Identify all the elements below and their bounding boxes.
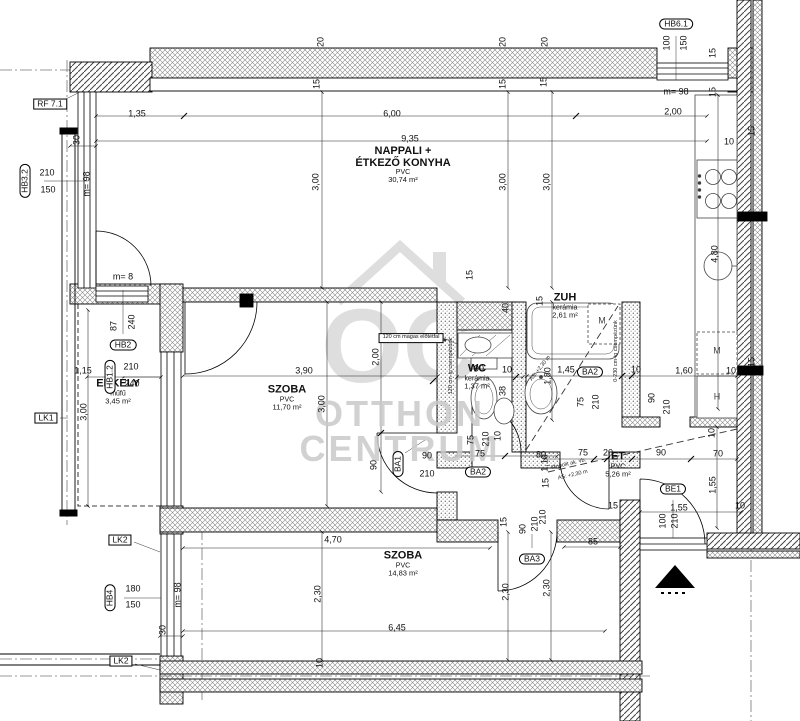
dimension-label: 85 [588,537,598,546]
dimension-label: 90 [518,524,527,534]
dimension-label: 20 [498,37,507,47]
dimension-label: 2,00 [664,107,682,116]
appliance-letter: H [714,392,721,401]
dimension-label: 15 [608,501,618,510]
dimension-label: 90 [656,448,666,457]
opening-tag: HB3.2 [20,164,31,198]
dimension-label: 10 [493,431,502,441]
dimension-label: m= 98 [663,87,688,96]
dimension-label: 210 [39,168,54,177]
dimension-label: 90 [474,364,484,373]
stove-icon [697,160,737,218]
room-label: SZOBAPVC14,83 m² [384,551,423,578]
dimension-label: 1,60 [675,366,693,375]
dimension-label: 210 [419,469,434,478]
dimension-label: 180 [125,584,140,593]
dimension-label: 90 [422,451,432,460]
room-area: 11,70 m² [268,404,307,412]
dimension-label: 15 [747,126,756,136]
dimension-label: 4,80 [710,245,719,263]
dimension-label: 15 [498,79,507,89]
dimension-label: 3,00 [79,403,88,421]
entrance-arrow-icon [655,565,695,593]
dimension-label: 15 [539,77,548,87]
dimension-label: 3,00 [317,395,326,413]
dimension-label: m= 98 [173,582,182,607]
corner-basin-icon [494,398,514,424]
dimension-label: 90 [647,393,656,403]
dimension-label: 1,15 [74,366,92,375]
dimension-label: 15 [708,48,717,58]
dimension-label: m= 98 [82,171,91,196]
opening-tag: BA3 [519,554,545,565]
dimension-label: 1,55 [670,503,688,512]
room-label: SZOBAPVC11,70 m² [268,385,307,412]
dimension-label: 2,00 [371,348,380,366]
dimension-label: 210 [662,399,671,414]
door-be1 [640,538,707,550]
dimension-label: 3,00 [311,173,320,191]
dimension-label: 15 [708,87,717,97]
dimension-label: 20 [540,37,549,47]
dimension-label: 87 [109,321,118,331]
reference-box: LK1 [34,413,57,424]
dimension-label: 10 [315,658,324,668]
dimension-label: 6,00 [383,109,401,118]
room-area: 14,83 m² [384,570,423,578]
dimension-label: 70 [713,449,723,458]
room-name: NAPPALI + [355,146,450,158]
dimension-label: 10 [726,366,736,375]
dimension-label: 210 [123,362,138,371]
reference-box: LK2 [108,535,131,546]
wc-vanity-icon [458,333,512,358]
dimension-label: 38 [498,386,507,396]
opening-tag: HB4 [105,585,116,612]
dimension-label: 20 [316,37,325,47]
dimension-label: 10 [724,137,734,146]
dimension-label: 1,35 [128,109,146,118]
dimension-label: 6,45 [388,623,406,632]
appliance-letter: M [598,316,606,325]
dimension-label: 1,10 [540,454,549,472]
room-area: 2,61 m² [552,312,577,320]
dimension-label: 30 [158,625,167,635]
dimension-label: 90 [369,460,378,470]
construction-note: 120 cm magas előtétfal [379,333,444,343]
dimension-label: 40 [501,303,510,313]
dimension-label: 9,35 [401,134,419,143]
dimension-label: 15 [747,357,756,367]
door-arc-szoba [185,302,257,374]
dimension-label: 2,30 [313,585,322,603]
reference-box: RF 7.1 [33,99,67,110]
dimension-label: 210 [530,516,539,531]
dimension-label: 100 [662,35,671,50]
dimension-label: 3,00 [498,173,507,191]
construction-note: 0-230 cm-ig csempézünk [614,320,620,381]
appliance-letter: M [713,346,721,355]
dimension-label: 75 [466,435,475,445]
opening-tag: BA2 [465,467,491,478]
room-label: ZUHkerámia2,61 m² [552,293,577,320]
dimension-label: 75 [578,448,588,457]
dimension-label: 210 [481,431,490,446]
dimension-label: 75 [576,397,585,407]
dimension-label: 15 [541,478,550,488]
room-name: ÉTKEZŐ KONYHA [355,157,450,169]
dimension-label: 10 [735,501,745,510]
dimension-label: 20 [603,448,613,457]
dimension-label: 10 [502,365,512,374]
dimension-label: 3,00 [542,173,551,191]
opening-tag: HB1.2 [105,360,116,394]
door-hb1-2 [161,352,181,506]
dimension-label: 2,30 [542,579,551,597]
room-area: 30,74 m² [355,176,450,184]
dimension-label: 150 [125,600,140,609]
dimension-label: 240 [124,379,139,388]
room-area: 1,37 m² [464,383,489,391]
window-hb6-1 [657,63,728,80]
dimension-label: 15 [535,296,544,306]
dimension-label: 1,45 [557,365,575,374]
dimension-label: 75 [475,449,485,458]
dimension-label: m= 8 [113,272,133,281]
dimension-label: 240 [127,314,136,329]
opening-tag: HB6.1 [659,19,693,30]
construction-note: 120 cm-ig csempézünk [449,338,455,395]
dimension-label: 1,55 [708,476,717,494]
room-name: SZOBA [384,551,423,563]
dimension-label: 150 [40,185,55,194]
opening-tag: BA1 [393,451,404,477]
opening-tag: BE1 [660,484,686,495]
dimension-label: 100 [658,513,667,528]
room-name: ZUH [552,293,577,305]
dimension-label: 3,90 [295,366,313,375]
room-label: NAPPALI +ÉTKEZŐ KONYHAPVC30,74 m² [355,146,450,184]
dimension-label: 2,30 [501,583,510,601]
reference-box: LK2 [109,656,132,667]
opening-tag: BA2 [577,367,603,378]
room-area: 5,26 m² [605,471,630,479]
dimension-label: 10 [631,365,641,374]
dimension-label: 15 [499,517,508,527]
dimension-label: 30 [72,135,81,145]
opening-tag: HB2 [110,340,137,351]
dimension-label: 15 [465,270,474,280]
dimension-label: 210 [591,394,600,409]
door-hb2 [96,286,148,302]
room-name: SZOBA [268,385,307,397]
dimension-label: 210 [670,513,679,528]
dimension-label: 1,80 [543,367,552,385]
dimension-label: 15 [312,79,321,89]
room-area: 3,45 m² [96,398,140,406]
floor-plan-canvas: OC [0,0,800,721]
dimension-label: 150 [679,35,688,50]
dimension-label: 4,70 [324,535,342,544]
dimension-label: 10 [707,428,716,438]
